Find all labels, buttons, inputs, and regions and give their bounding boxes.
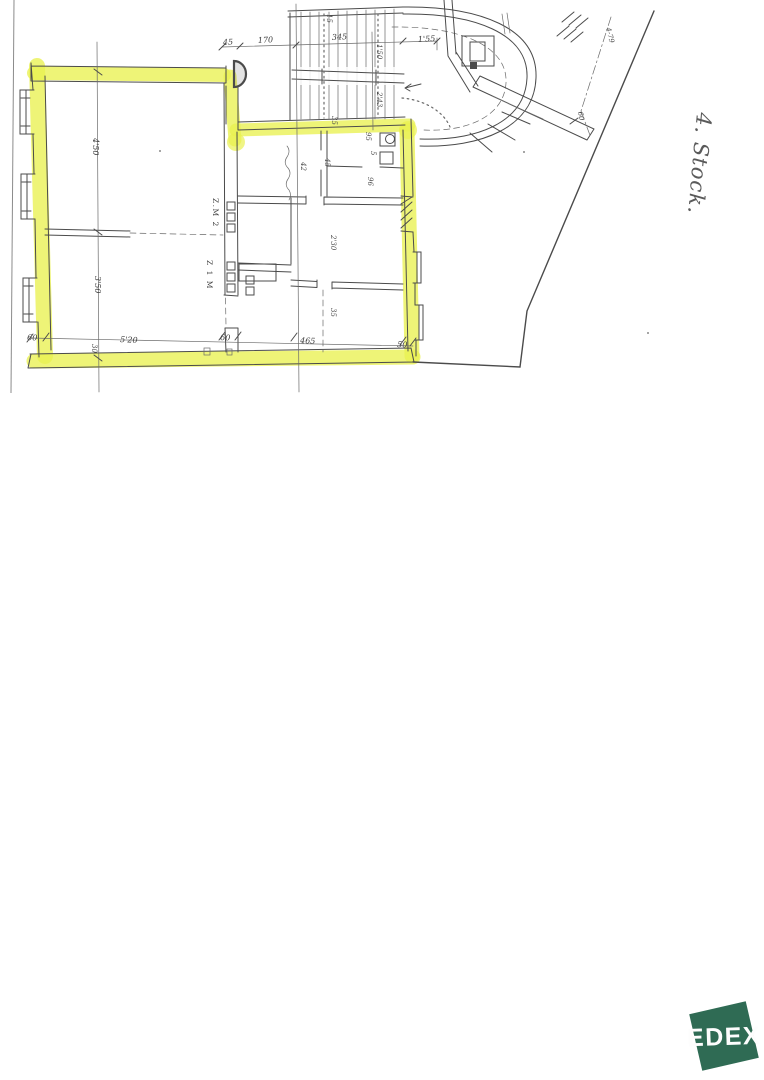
handwriting-note bbox=[285, 146, 290, 200]
dim-label: 60 bbox=[576, 111, 586, 122]
highlight-bottom-wall bbox=[34, 357, 413, 361]
closet-symbol bbox=[239, 264, 276, 281]
dimension-lines bbox=[27, 4, 578, 392]
dim-label: 45 bbox=[222, 37, 234, 47]
slope-hatch-marks bbox=[557, 12, 588, 42]
room-label: Z.M 2 bbox=[211, 198, 220, 228]
floorplan-drawing: 45 170 345 1'55 15 1'50 2'43 35 45 42 95… bbox=[0, 0, 764, 1080]
dark-flue bbox=[470, 62, 477, 69]
door-swing-symbol bbox=[234, 61, 246, 87]
corridor-bridge bbox=[473, 76, 594, 140]
partition-solid bbox=[45, 229, 130, 237]
dim-label: 35 bbox=[330, 116, 338, 125]
scan-edge-line bbox=[11, 0, 14, 393]
dim-label: 45 bbox=[323, 157, 331, 167]
basin-symbol bbox=[386, 135, 395, 144]
window-symbol bbox=[23, 278, 37, 322]
curve-inner bbox=[403, 14, 527, 139]
highlight-blob bbox=[227, 133, 245, 151]
dim-label: 170 bbox=[258, 35, 274, 45]
curve-walkline bbox=[392, 27, 506, 130]
highlight-top-wall bbox=[34, 73, 224, 75]
dim-label: 1'50 bbox=[375, 44, 383, 60]
dim-label: 5 bbox=[369, 151, 377, 156]
dim-label: 35 bbox=[329, 308, 337, 317]
dim-label: 60 bbox=[220, 333, 231, 343]
dim-label: 4'50 bbox=[91, 137, 100, 155]
speckle bbox=[159, 150, 161, 152]
stairwell bbox=[288, 7, 421, 120]
dim-label: 30 bbox=[90, 344, 98, 353]
dim-label: 465 bbox=[299, 336, 316, 346]
mid-wall bbox=[238, 196, 403, 205]
lower-wall-2 bbox=[291, 280, 403, 290]
dim-label: 42 bbox=[299, 161, 307, 171]
dim-label: 96 bbox=[366, 177, 374, 186]
dim-label: 3'50 bbox=[93, 276, 102, 293]
dim-label: 15 bbox=[325, 14, 333, 23]
room-labels: Z.M 2 Z 1 M bbox=[205, 198, 220, 290]
dim-line-vertical-stair bbox=[372, 32, 373, 130]
outer-walls bbox=[28, 63, 416, 368]
edex-logo: EDEX bbox=[687, 1001, 762, 1071]
logo-text: EDEX bbox=[687, 1022, 762, 1053]
bath-fixtures bbox=[380, 133, 395, 164]
scanned-floorplan-page: 45 170 345 1'55 15 1'50 2'43 35 45 42 95… bbox=[0, 0, 764, 1080]
dim-label: 1'55 bbox=[418, 34, 436, 44]
door-gap-dashed bbox=[226, 298, 227, 326]
speckle bbox=[647, 332, 649, 334]
entry-door bbox=[234, 61, 246, 87]
bath-partition bbox=[327, 166, 403, 168]
direction-arrow bbox=[405, 84, 421, 91]
stair-top-wall bbox=[288, 7, 403, 17]
dim-label: 2'30 bbox=[329, 234, 337, 251]
dim-ticks bbox=[27, 38, 578, 361]
dim-label: 60 bbox=[27, 333, 38, 343]
property-boundary bbox=[413, 11, 654, 367]
dim-label: 95 bbox=[364, 132, 372, 141]
speckle bbox=[523, 151, 525, 153]
dim-label: 345 bbox=[332, 32, 348, 42]
dim-label: 2'43 bbox=[375, 91, 383, 108]
room-label: Z 1 M bbox=[205, 260, 214, 290]
fixture-symbol bbox=[380, 152, 393, 164]
partition-dashed bbox=[130, 233, 223, 235]
corridor-inner-line bbox=[492, 96, 543, 119]
stair-walkline bbox=[324, 14, 378, 118]
dim-label: 50 bbox=[397, 340, 408, 350]
dim-label: 5'20 bbox=[120, 335, 138, 345]
highlight-blob bbox=[399, 121, 417, 139]
wall-stub bbox=[502, 13, 510, 34]
floor-note: 4. Stock. bbox=[683, 111, 716, 216]
highlight-left-wall bbox=[37, 66, 45, 356]
